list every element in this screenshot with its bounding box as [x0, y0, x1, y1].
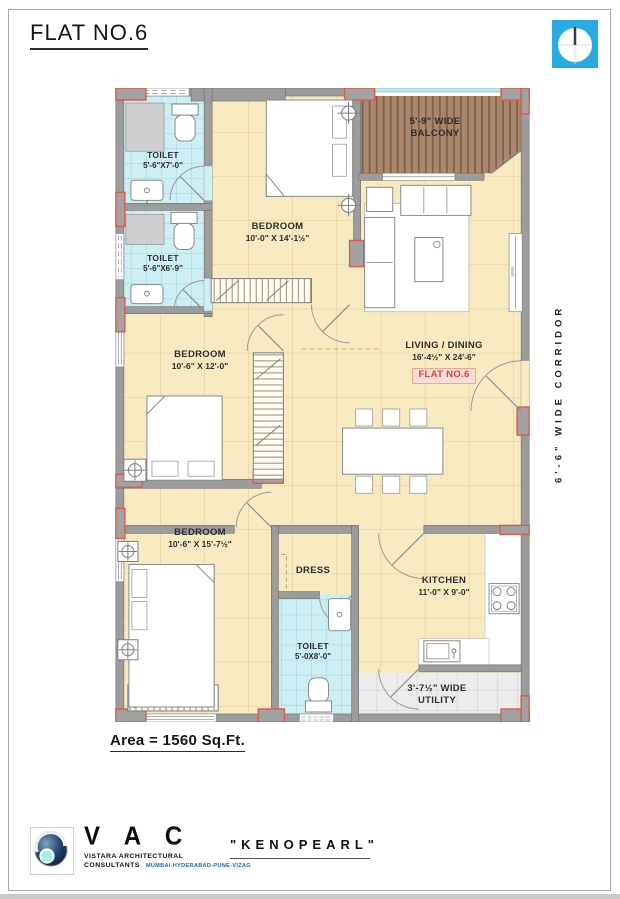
bed [129, 565, 214, 707]
sheet-bottom-edge [0, 894, 620, 899]
wardrobe [211, 279, 311, 303]
bed [147, 396, 222, 480]
coffee-table [415, 237, 443, 281]
firm-name: VISTARA ARCHITECTURAL CONSULTANTS MUMBAI… [84, 853, 251, 869]
fan-symbol [124, 459, 146, 481]
project-name: "KENOPEARL" [230, 837, 370, 859]
window [299, 714, 333, 722]
wc-bowl [175, 115, 195, 141]
room-label-bedroom-mid: BEDROOM 10'-6" X 12'-0" [135, 349, 265, 372]
washbasin [131, 285, 163, 304]
floor-plan-sheet: FLAT NO.6 [0, 0, 620, 899]
vac-logo [30, 827, 74, 875]
sheet-title: FLAT NO.6 [30, 20, 148, 50]
room-label-bedroom-bottom: BEDROOM 10'-6" X 15'-7½" [135, 527, 265, 550]
room-label-toilet-top: TOILET 5'-6"X7'-0" [123, 150, 203, 171]
title-block: V A C VISTARA ARCHITECTURAL CONSULTANTS … [0, 820, 620, 890]
wc-bowl [308, 678, 328, 702]
room-label-balcony: 5'-9" WIDE BALCONY [370, 116, 500, 141]
room-label-dress: DRESS [283, 565, 343, 577]
room-label-utility: 3'-7½" WIDE UTILITY [372, 683, 502, 708]
brand-initials: V A C [84, 822, 191, 852]
corridor-label: 6'-6" WIDE CORRIDOR [546, 258, 572, 530]
room-label-toilet-mid: TOILET 5'-6"X6'-9" [123, 253, 203, 274]
wc-bowl [174, 223, 194, 249]
washbasin [131, 180, 163, 200]
shower-platform [126, 103, 164, 151]
washbasin [329, 599, 351, 631]
fan-symbol [118, 640, 138, 660]
bed [266, 100, 352, 196]
room-label-living: LIVING / DINING 16'-4½" X 24'-6" FLAT NO… [369, 340, 519, 384]
floor-plan-drawing [115, 88, 530, 722]
flat-number-tag: FLAT NO.6 [412, 368, 475, 383]
room-label-bedroom-top: BEDROOM 10'-0" X 14'-1½" [210, 221, 345, 244]
room-label-toilet-bottom: TOILET 5'-0X8'-0" [283, 641, 343, 662]
balcony-railing [369, 88, 501, 92]
wc-tank [172, 104, 198, 115]
north-arrow-icon [552, 20, 598, 73]
shower-platform [126, 214, 164, 244]
wc-tank [305, 701, 331, 712]
window [141, 88, 189, 96]
wc-tank [171, 212, 197, 223]
door-unit [509, 233, 522, 311]
area-note: Area = 1560 Sq.Ft. [110, 732, 245, 752]
firm-cities: MUMBAI-HYDERABAD-PUNE-VIZAG [146, 863, 251, 869]
room-label-kitchen: KITCHEN 11'-0" X 9'-0" [379, 575, 509, 598]
